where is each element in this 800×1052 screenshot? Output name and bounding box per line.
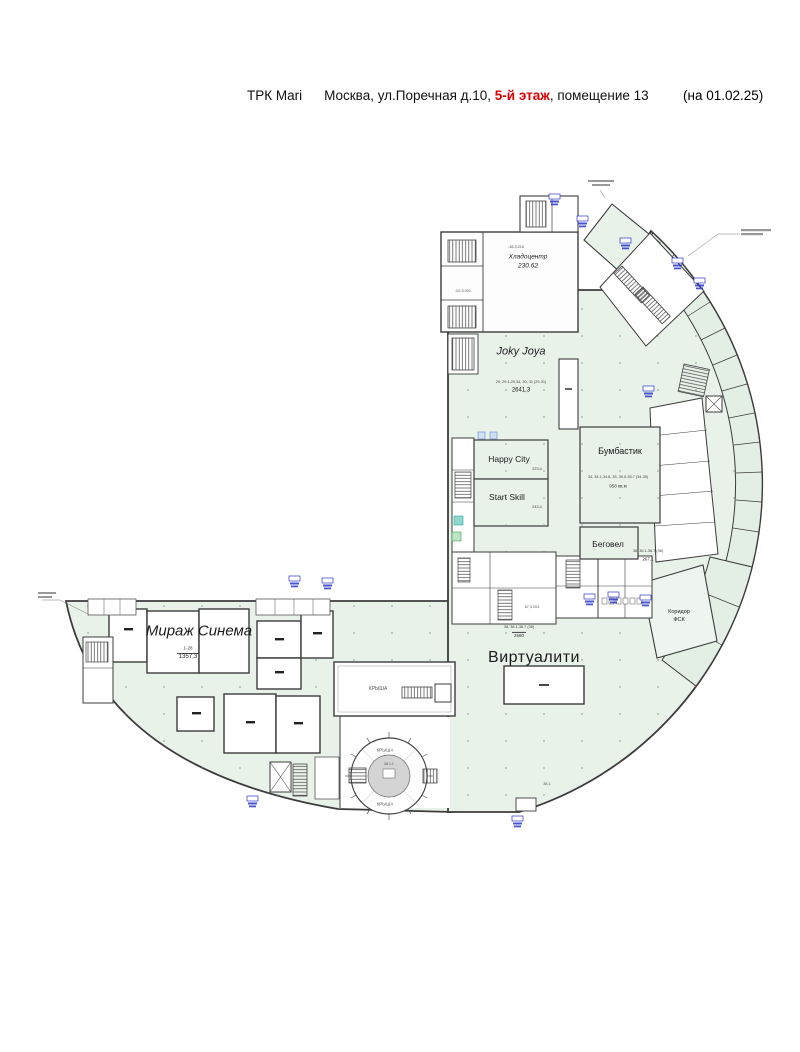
utility-mid: [452, 552, 556, 624]
stairs-hatch: [423, 769, 437, 783]
stairs-hatch: [566, 560, 580, 588]
floor-plan-drawing: [0, 0, 800, 1052]
zone-rooms-joky: 29, 29.1-29.34, 30, 31 (29-31): [496, 380, 546, 384]
cinema-hall: [301, 611, 333, 658]
top-tower: [520, 196, 578, 232]
joky-shaft: [559, 359, 578, 429]
zone-area-virtuality: 2580: [512, 632, 526, 638]
room-number: 38.1.1: [384, 762, 394, 766]
stairs-hatch: [448, 240, 476, 262]
zone-label-fsk-2: ФСК: [673, 617, 684, 623]
zone-area-mirage: 1357,3: [177, 653, 199, 661]
room-number: 38.1: [543, 782, 550, 786]
exit-box: [516, 798, 536, 811]
equipment-marker: [454, 516, 463, 525]
zone-label-chiller: Хладоцентр: [509, 253, 548, 260]
cinema-hall: [199, 609, 249, 673]
cinema-hall: [276, 696, 320, 753]
zone-area-chiller: 230.62: [518, 262, 538, 269]
zone-rooms-mirage: 1-28: [183, 645, 192, 650]
zone-area-bumbastic: 958 кв.м: [609, 483, 626, 488]
room-number: 87,3.003: [525, 605, 540, 609]
escalator-hatch: [402, 687, 432, 698]
zone-label-fsk-1: Коридор: [668, 609, 690, 615]
stairs-hatch: [678, 364, 709, 397]
zone-area-start-skill: 243,4: [532, 505, 542, 509]
stairs-hatch: [455, 472, 471, 498]
zone-label-bumbastic: Бумбастик: [598, 446, 642, 456]
stairs-hatch: [458, 558, 470, 582]
zone-label-begovel: Беговел: [592, 540, 624, 550]
cinema-hall: [224, 694, 276, 753]
floor-plan-page: ТРК MariМосква, ул.Поречная д.10, 5-й эт…: [0, 0, 800, 1052]
roof-label-rotunda-top: КРЫША: [377, 747, 394, 752]
zone-area-happy-city: 223,4: [532, 467, 542, 471]
zone-label-happy-city: Happy City: [488, 455, 530, 465]
zone-label-joky-joya: Joky Joya: [497, 346, 546, 359]
stairs-hatch: [498, 590, 512, 620]
stairs-hatch: [526, 201, 546, 227]
zone-rooms-begovel: 36, 36.1-36.7 (36): [633, 549, 663, 553]
room-number: -02.3.001: [455, 289, 471, 293]
roof-label-rotunda-bottom: КРЫША: [377, 801, 394, 806]
zone-label-start-skill: Start Skill: [489, 493, 525, 503]
cinema-hall: [147, 611, 199, 673]
stairs-hatch: [448, 306, 476, 328]
roof-label-corridor: КРЫША: [369, 687, 388, 693]
zone-rooms-virtuality: 38, 38.1-38.7 (38): [504, 625, 534, 629]
equipment-marker: [452, 532, 461, 541]
corridor: [334, 662, 455, 716]
zone-area-begovel: 267,1: [642, 556, 653, 561]
stairs-hatch: [86, 642, 108, 662]
stairs-hatch: [293, 764, 307, 796]
zone-label-mirage-cinema: Мираж Синема: [146, 622, 252, 639]
cinema-hall: [257, 658, 301, 689]
equipment-marker: [490, 432, 497, 439]
stairs-hatch: [452, 338, 474, 370]
zone-rooms-bumbastic: 34, 34.1-34.8, 35, 35.5-35.7 (34-35): [588, 475, 648, 479]
wc-cluster: [556, 556, 652, 618]
cinema-hall: [109, 609, 147, 662]
equipment-marker: [478, 432, 485, 439]
room-number: -38.3.018: [508, 245, 524, 249]
stairs-hatch: [349, 768, 366, 783]
zone-label-virtuality: Виртуалити: [488, 649, 580, 667]
zone-area-joky: 2641,3: [512, 388, 530, 395]
